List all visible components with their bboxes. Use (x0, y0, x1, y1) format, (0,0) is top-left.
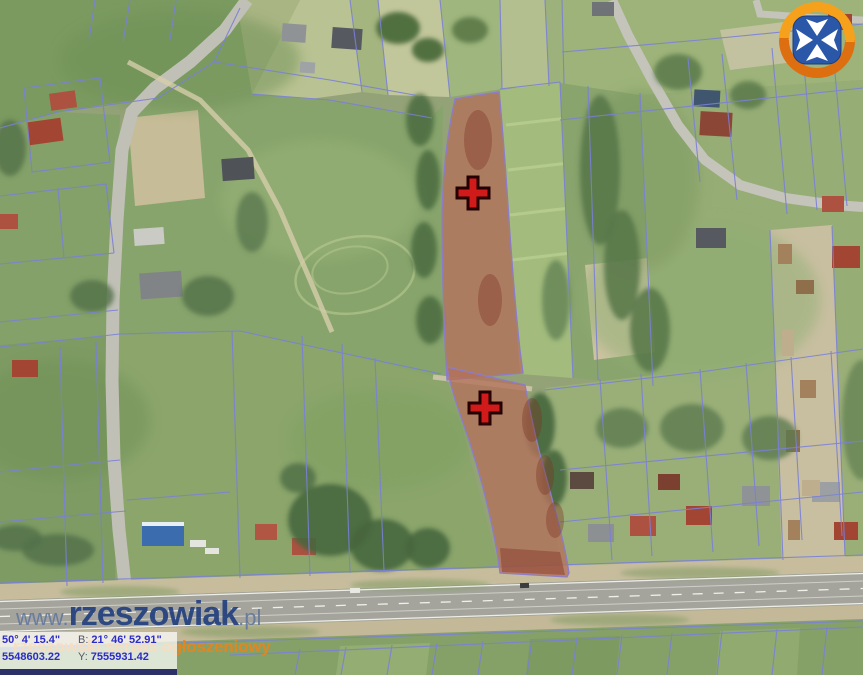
longitude-value: B:21° 46' 52.91" (78, 634, 162, 646)
rzeszow-crest-icon (779, 7, 855, 73)
panel-bottom-bar (0, 669, 177, 675)
x-coordinate-value: 5548603.22 (2, 651, 60, 663)
y-coordinate-value: Y:7555931.42 (78, 651, 149, 663)
rzeszowiak-logo (778, 1, 856, 79)
map-viewer: www.rzeszowiak.pl rzeszowski serwis ogło… (0, 0, 863, 675)
coordinate-row-geo: 50° 4' 15.4" B:21° 46' 52.91" (0, 634, 177, 649)
map-canvas[interactable] (0, 0, 863, 675)
coordinate-row-xy: 5548603.22 Y:7555931.42 (0, 651, 177, 666)
latitude-value: 50° 4' 15.4" (2, 634, 60, 646)
coordinates-panel: 50° 4' 15.4" B:21° 46' 52.91" 5548603.22… (0, 632, 177, 669)
